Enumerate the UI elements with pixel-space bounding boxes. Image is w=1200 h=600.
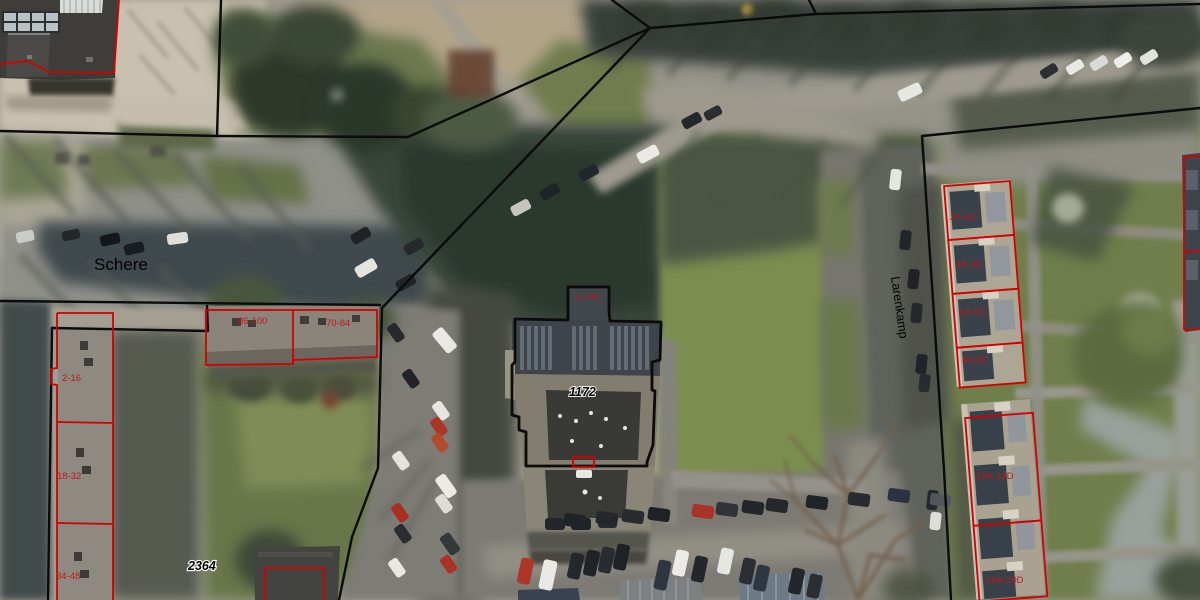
svg-text:16A-20D: 16A-20D [986, 575, 1024, 586]
svg-text:86-100: 86-100 [238, 316, 268, 327]
svg-text:2-16: 2-16 [62, 373, 81, 384]
svg-text:6A-6C: 6A-6C [959, 307, 986, 318]
svg-text:10A-14D: 10A-14D [976, 471, 1014, 482]
svg-text:8A-8C: 8A-8C [962, 355, 989, 366]
svg-text:70-84: 70-84 [326, 318, 350, 329]
svg-text:1A-96B: 1A-96B [574, 292, 599, 301]
svg-text:34-48: 34-48 [56, 571, 80, 582]
svg-text:2A-2C: 2A-2C [950, 212, 977, 223]
svg-text:2364: 2364 [187, 559, 216, 573]
svg-text:4A-4C: 4A-4C [956, 259, 983, 270]
svg-text:Schere: Schere [94, 255, 148, 274]
svg-text:18-32: 18-32 [57, 471, 81, 482]
svg-text:1172: 1172 [569, 385, 596, 399]
